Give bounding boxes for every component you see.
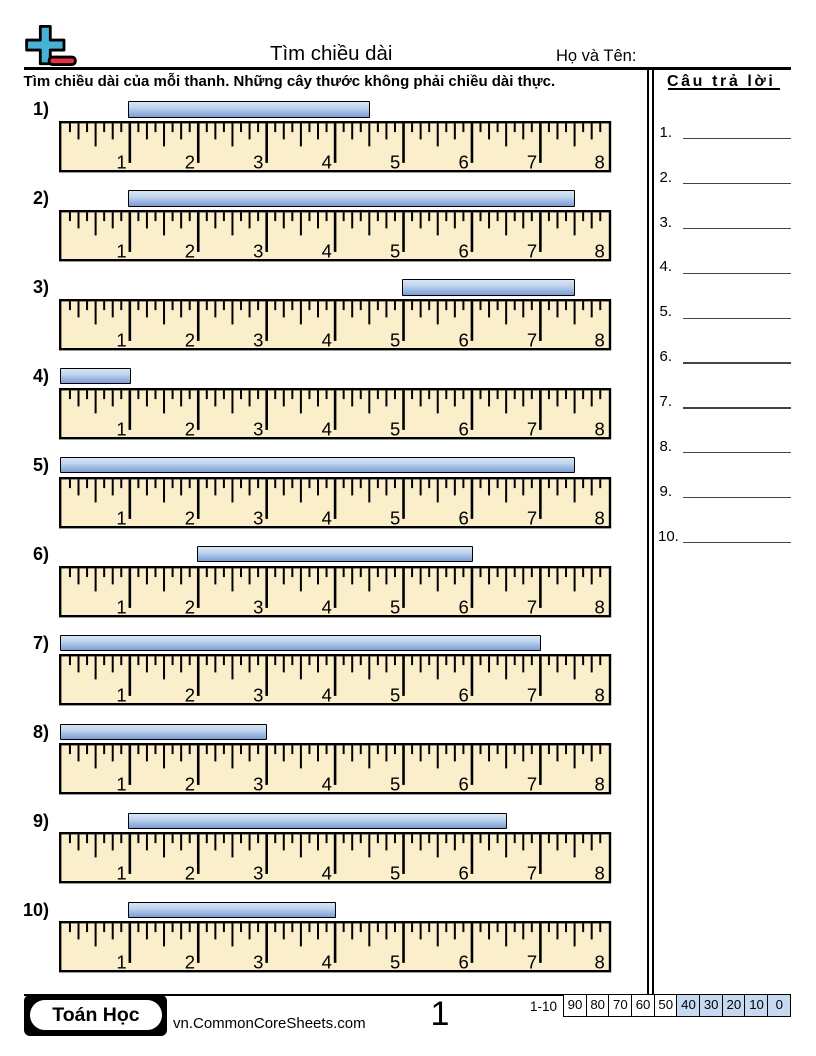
svg-text:1: 1 [116, 952, 126, 973]
svg-text:6: 6 [458, 507, 468, 528]
svg-text:1: 1 [116, 596, 126, 617]
svg-text:4: 4 [321, 596, 331, 617]
svg-text:4: 4 [321, 952, 331, 973]
svg-text:2: 2 [185, 952, 195, 973]
svg-text:3: 3 [253, 240, 263, 261]
svg-text:2: 2 [185, 863, 195, 884]
svg-text:6: 6 [458, 596, 468, 617]
svg-text:3: 3 [253, 596, 263, 617]
svg-text:4: 4 [321, 863, 331, 884]
svg-text:6: 6 [458, 240, 468, 261]
svg-text:7: 7 [527, 774, 537, 795]
svg-text:8: 8 [594, 240, 604, 261]
svg-text:5: 5 [390, 596, 400, 617]
svg-text:7: 7 [527, 418, 537, 439]
svg-text:1: 1 [116, 863, 126, 884]
svg-text:8: 8 [594, 863, 604, 884]
svg-text:5: 5 [390, 507, 400, 528]
svg-text:8: 8 [594, 685, 604, 706]
svg-text:3: 3 [253, 952, 263, 973]
svg-text:7: 7 [527, 596, 537, 617]
svg-text:3: 3 [253, 329, 263, 350]
svg-text:6: 6 [458, 952, 468, 973]
svg-text:3: 3 [253, 774, 263, 795]
svg-text:7: 7 [527, 151, 537, 172]
svg-text:4: 4 [321, 774, 331, 795]
svg-text:7: 7 [527, 952, 537, 973]
svg-text:2: 2 [185, 774, 195, 795]
svg-text:5: 5 [390, 418, 400, 439]
svg-text:5: 5 [390, 685, 400, 706]
svg-text:7: 7 [527, 507, 537, 528]
svg-text:4: 4 [321, 507, 331, 528]
svg-text:4: 4 [321, 151, 331, 172]
svg-text:2: 2 [185, 240, 195, 261]
svg-text:8: 8 [594, 151, 604, 172]
svg-text:5: 5 [390, 774, 400, 795]
svg-text:5: 5 [390, 329, 400, 350]
svg-text:2: 2 [185, 418, 195, 439]
svg-text:3: 3 [253, 151, 263, 172]
svg-text:4: 4 [321, 329, 331, 350]
svg-text:5: 5 [390, 863, 400, 884]
svg-text:3: 3 [253, 507, 263, 528]
svg-text:2: 2 [185, 685, 195, 706]
svg-text:1: 1 [116, 151, 126, 172]
svg-text:5: 5 [390, 151, 400, 172]
svg-text:4: 4 [321, 418, 331, 439]
svg-text:7: 7 [527, 240, 537, 261]
svg-text:1: 1 [116, 329, 126, 350]
svg-text:2: 2 [185, 596, 195, 617]
svg-text:1: 1 [116, 240, 126, 261]
svg-text:5: 5 [390, 952, 400, 973]
svg-text:6: 6 [458, 418, 468, 439]
svg-text:7: 7 [527, 685, 537, 706]
svg-text:5: 5 [390, 240, 400, 261]
svg-text:8: 8 [594, 596, 604, 617]
svg-text:8: 8 [594, 774, 604, 795]
svg-text:2: 2 [185, 329, 195, 350]
svg-text:8: 8 [594, 329, 604, 350]
svg-text:1: 1 [116, 507, 126, 528]
svg-text:2: 2 [185, 151, 195, 172]
svg-text:1: 1 [116, 774, 126, 795]
svg-text:8: 8 [594, 507, 604, 528]
svg-text:7: 7 [527, 863, 537, 884]
svg-text:6: 6 [458, 774, 468, 795]
svg-text:4: 4 [321, 685, 331, 706]
svg-text:3: 3 [253, 418, 263, 439]
svg-text:8: 8 [594, 952, 604, 973]
svg-text:6: 6 [458, 863, 468, 884]
svg-text:4: 4 [321, 240, 331, 261]
svg-text:8: 8 [594, 418, 604, 439]
svg-text:1: 1 [116, 418, 126, 439]
svg-text:1: 1 [116, 685, 126, 706]
svg-text:6: 6 [458, 329, 468, 350]
svg-text:2: 2 [185, 507, 195, 528]
svg-text:7: 7 [527, 329, 537, 350]
svg-text:6: 6 [458, 685, 468, 706]
svg-text:3: 3 [253, 685, 263, 706]
svg-text:3: 3 [253, 863, 263, 884]
svg-text:6: 6 [458, 151, 468, 172]
